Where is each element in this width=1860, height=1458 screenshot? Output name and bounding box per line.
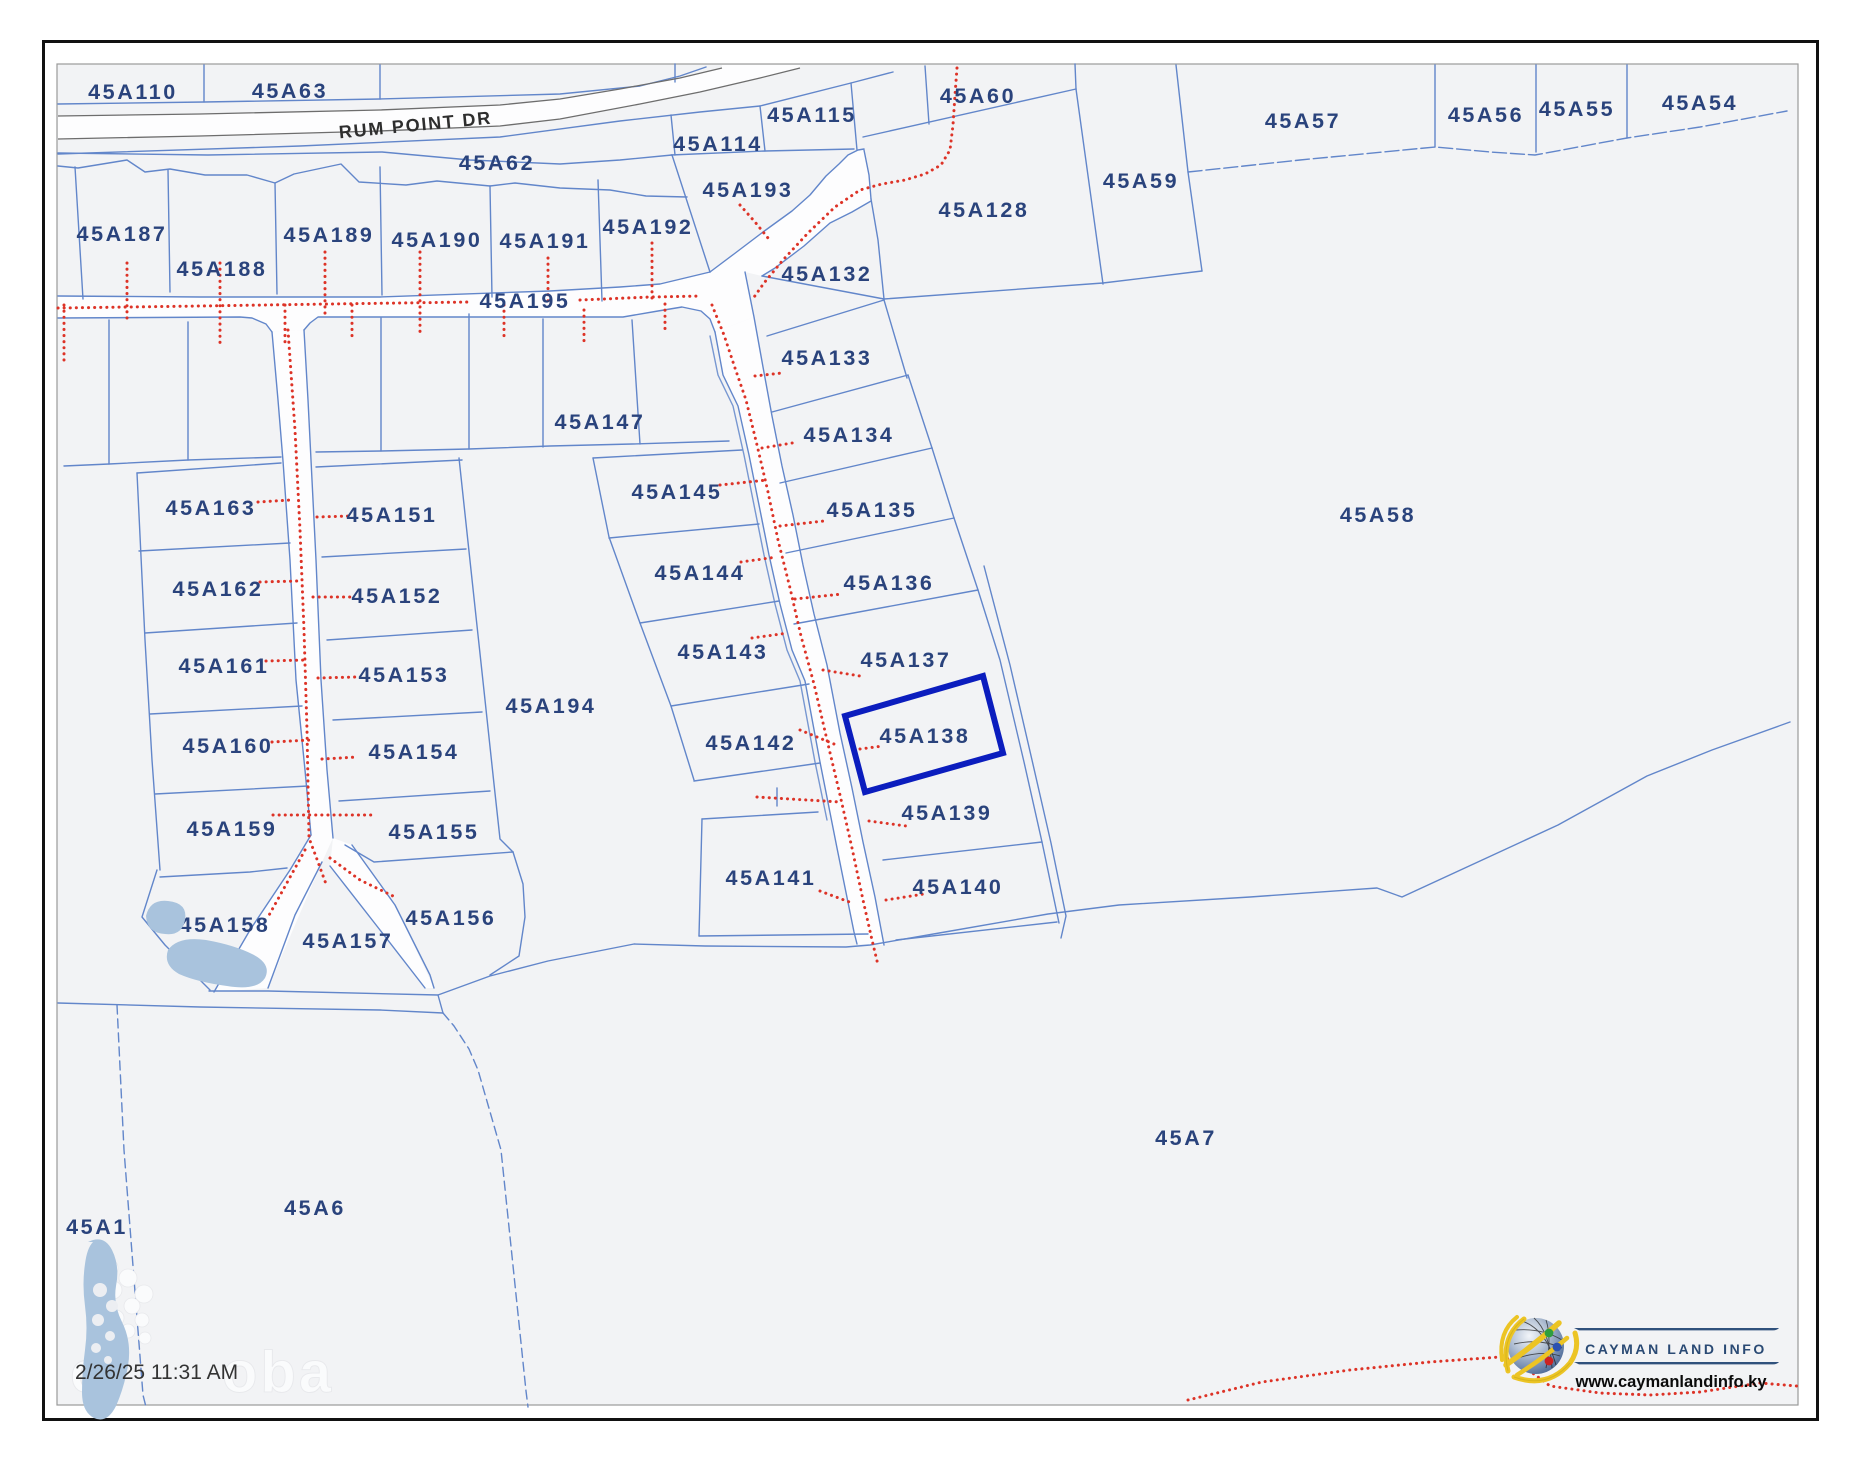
svg-text:45A143: 45A143 xyxy=(678,640,769,664)
svg-text:45A190: 45A190 xyxy=(392,228,483,252)
svg-text:45A137: 45A137 xyxy=(861,648,952,672)
svg-text:45A133: 45A133 xyxy=(782,346,873,370)
svg-text:45A147: 45A147 xyxy=(555,410,646,434)
svg-text:45A153: 45A153 xyxy=(359,663,450,687)
svg-text:45A192: 45A192 xyxy=(603,215,694,239)
svg-text:45A134: 45A134 xyxy=(804,423,895,447)
svg-text:45A142: 45A142 xyxy=(706,731,797,755)
svg-text:45A62: 45A62 xyxy=(459,151,535,175)
svg-text:45A194: 45A194 xyxy=(506,694,597,718)
svg-text:45A188: 45A188 xyxy=(177,257,268,281)
svg-text:45A56: 45A56 xyxy=(1448,103,1524,127)
svg-text:45A128: 45A128 xyxy=(939,198,1030,222)
svg-text:45A114: 45A114 xyxy=(673,132,763,156)
svg-text:45A154: 45A154 xyxy=(369,740,460,764)
svg-text:2/26/25 11:31 AM: 2/26/25 11:31 AM xyxy=(75,1361,238,1384)
svg-text:45A161: 45A161 xyxy=(179,654,270,678)
svg-text:45A63: 45A63 xyxy=(252,79,328,103)
svg-text:45A139: 45A139 xyxy=(902,801,993,825)
svg-text:45A155: 45A155 xyxy=(389,820,480,844)
svg-text:45A138: 45A138 xyxy=(880,724,971,748)
svg-text:45A158: 45A158 xyxy=(180,913,271,937)
svg-text:45A57: 45A57 xyxy=(1265,109,1341,133)
svg-text:45A59: 45A59 xyxy=(1103,169,1179,193)
svg-text:45A145: 45A145 xyxy=(632,480,723,504)
svg-text:45A6: 45A6 xyxy=(284,1196,346,1220)
svg-text:45A144: 45A144 xyxy=(655,561,746,585)
svg-text:45A110: 45A110 xyxy=(88,80,178,104)
svg-text:45A195: 45A195 xyxy=(480,289,571,313)
svg-text:45A191: 45A191 xyxy=(500,229,591,253)
svg-text:45A136: 45A136 xyxy=(844,571,935,595)
svg-text:45A55: 45A55 xyxy=(1539,97,1615,121)
svg-text:45A151: 45A151 xyxy=(347,503,438,527)
svg-text:45A60: 45A60 xyxy=(940,84,1016,108)
svg-text:45A156: 45A156 xyxy=(406,906,497,930)
svg-text:45A115: 45A115 xyxy=(767,103,857,127)
svg-text:CAYMAN LAND INFO: CAYMAN LAND INFO xyxy=(1585,1341,1767,1357)
svg-text:45A54: 45A54 xyxy=(1662,91,1738,115)
svg-text:45A132: 45A132 xyxy=(782,262,873,286)
svg-text:45A187: 45A187 xyxy=(77,222,168,246)
svg-text:45A162: 45A162 xyxy=(173,577,264,601)
svg-text:www.caymanlandinfo.ky: www.caymanlandinfo.ky xyxy=(1574,1373,1767,1391)
svg-text:45A7: 45A7 xyxy=(1155,1126,1217,1150)
svg-text:45A1: 45A1 xyxy=(66,1215,128,1239)
svg-text:45A140: 45A140 xyxy=(913,875,1004,899)
svg-text:45A160: 45A160 xyxy=(183,734,274,758)
svg-text:45A152: 45A152 xyxy=(352,584,443,608)
svg-text:45A135: 45A135 xyxy=(827,498,918,522)
svg-text:45A193: 45A193 xyxy=(703,178,794,202)
svg-text:45A163: 45A163 xyxy=(166,496,257,520)
svg-text:45A189: 45A189 xyxy=(284,223,375,247)
svg-text:45A141: 45A141 xyxy=(726,866,817,890)
svg-text:45A58: 45A58 xyxy=(1340,503,1416,527)
svg-text:45A159: 45A159 xyxy=(187,817,278,841)
svg-text:oba: oba xyxy=(222,1340,334,1405)
svg-text:45A157: 45A157 xyxy=(303,929,394,953)
